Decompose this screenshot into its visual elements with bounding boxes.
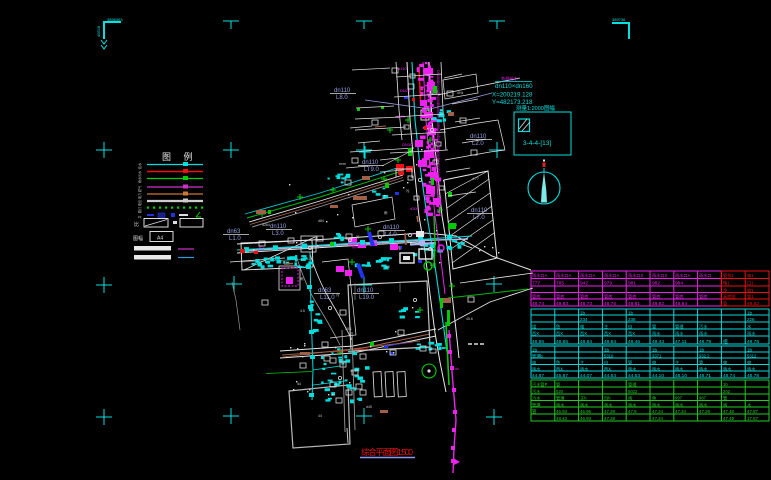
svg-text:rrnm: rrnm	[339, 162, 346, 166]
svg-text:48.84: 48.84	[580, 339, 592, 345]
svg-text:管: 管	[652, 323, 656, 330]
svg-text:785: 785	[556, 281, 564, 287]
svg-text:电1: 电1	[747, 287, 754, 293]
svg-text:48.86: 48.86	[556, 339, 568, 345]
svg-text:管: 管	[723, 300, 727, 307]
svg-text:雨水口A: 雨水口A	[604, 272, 620, 279]
svg-text:雨水: 雨水	[747, 330, 756, 337]
svg-text:管1: 管1	[747, 293, 754, 300]
svg-text:L11.0: L11.0	[320, 295, 335, 301]
svg-text:DN30: DN30	[402, 142, 413, 147]
svg-text:45.6: 45.6	[466, 317, 473, 321]
svg-text:管: 管	[556, 381, 560, 388]
svg-text:47.24: 47.24	[652, 416, 664, 421]
svg-text:44.07: 44.07	[580, 373, 592, 379]
svg-text:雨水: 雨水	[652, 366, 661, 373]
svg-text:48.76: 48.76	[604, 301, 616, 307]
svg-text:污: 污	[356, 234, 360, 239]
svg-text:dn: dn	[455, 367, 459, 371]
svg-text:雨: 雨	[384, 210, 388, 215]
svg-text:48.73: 48.73	[580, 301, 592, 307]
svg-text:污水管P: 污水管P	[532, 381, 548, 388]
svg-text:48.62: 48.62	[747, 301, 759, 307]
svg-text:A4: A4	[157, 236, 163, 242]
svg-text:5312: 5312	[747, 354, 757, 359]
svg-text:d300: d300	[410, 206, 420, 211]
svg-text:d110: d110	[398, 66, 407, 71]
svg-text:47.49: 47.49	[723, 416, 735, 421]
svg-text:48.43: 48.43	[652, 339, 664, 345]
svg-text:202: 202	[723, 389, 731, 394]
svg-text:5310: 5310	[604, 354, 614, 359]
svg-text:雨水: 雨水	[699, 330, 708, 337]
svg-text:dn110×dn160: dn110×dn160	[495, 83, 533, 90]
svg-text:1b: 1b	[604, 348, 610, 353]
svg-text:020: 020	[556, 389, 564, 394]
svg-text:管底: 管底	[604, 293, 612, 300]
svg-text:Y=482173.218: Y=482173.218	[492, 99, 533, 106]
svg-text:X=200219.128: X=200219.128	[492, 92, 533, 99]
svg-text:各样给水: 各样给水	[501, 75, 519, 82]
svg-text:47.29: 47.29	[699, 409, 711, 414]
svg-text:d4: d4	[297, 382, 301, 386]
svg-text:48.81: 48.81	[628, 301, 640, 307]
svg-text:雨水: 雨水	[652, 330, 661, 337]
svg-text:48.78: 48.78	[747, 373, 759, 379]
svg-text:4.77: 4.77	[472, 177, 479, 181]
svg-text:管检2: 管检2	[723, 272, 734, 279]
svg-text:给水: 给水	[137, 162, 142, 169]
svg-text:L2.0: L2.0	[472, 141, 484, 147]
svg-text:雨水: 雨水	[532, 366, 541, 373]
svg-text:48.74: 48.74	[532, 301, 544, 307]
svg-text:雨: 雨	[300, 276, 304, 281]
svg-text:L8.0: L8.0	[336, 95, 348, 101]
svg-text:3896363: 3896363	[107, 17, 123, 22]
svg-text:46.95: 46.95	[580, 409, 592, 414]
svg-text:L1.0: L1.0	[229, 236, 241, 242]
svg-text:雨水: 雨水	[723, 366, 732, 373]
svg-text:鱼: 鱼	[652, 395, 656, 401]
svg-text:1b: 1b	[747, 348, 753, 353]
svg-text:48.10: 48.10	[675, 373, 687, 379]
svg-text:雨水口A: 雨水口A	[532, 272, 548, 279]
svg-text:雨水口A: 雨水口A	[580, 272, 596, 279]
svg-text:污水: 污水	[532, 388, 541, 395]
svg-text:1b: 1b	[652, 348, 658, 353]
svg-text:雨水口: 雨水口	[699, 272, 712, 279]
svg-text:管底: 管底	[556, 293, 564, 300]
svg-text:1b: 1b	[532, 348, 538, 353]
svg-text:雨水: 雨水	[604, 402, 613, 409]
svg-text:48.84: 48.84	[675, 301, 687, 307]
svg-text:主b: 主b	[580, 395, 587, 401]
svg-text:4.5: 4.5	[300, 309, 305, 313]
svg-text:47.24: 47.24	[652, 409, 664, 414]
svg-text:48.94: 48.94	[604, 339, 616, 345]
svg-text:44.63: 44.63	[604, 373, 616, 379]
svg-text:污: 污	[336, 292, 340, 297]
svg-text:管: 管	[723, 395, 727, 402]
svg-text:雨水: 雨水	[628, 366, 637, 373]
svg-text:d264: d264	[262, 223, 270, 227]
svg-text:组: 组	[532, 323, 536, 329]
svg-text:综合平面图1:500: 综合平面图1:500	[361, 447, 413, 457]
svg-text:47.48: 47.48	[723, 409, 735, 414]
svg-text:1b: 1b	[580, 311, 586, 316]
svg-text:L7.0: L7.0	[473, 215, 485, 221]
svg-text:电1: 电1	[747, 272, 754, 278]
svg-text:雨水口A: 雨水口A	[675, 272, 691, 279]
svg-text:L4.0: L4.0	[385, 232, 397, 238]
svg-text:997: 997	[675, 396, 683, 401]
svg-text:48.82: 48.82	[652, 301, 664, 307]
svg-text:雨d3: 雨d3	[352, 244, 361, 249]
svg-text:48.79: 48.79	[699, 339, 711, 345]
svg-text:图 例: 图 例	[162, 151, 198, 162]
svg-text:雨水: 雨水	[628, 402, 637, 409]
svg-text:管理: 管理	[532, 402, 541, 409]
svg-text:管: 管	[532, 408, 537, 415]
svg-text:雨水: 雨水	[137, 176, 142, 183]
svg-text:40528: 40528	[96, 25, 101, 37]
svg-text:47.11: 47.11	[675, 339, 687, 345]
svg-text:46.93: 46.93	[580, 416, 592, 421]
svg-text:45.1: 45.1	[345, 327, 352, 331]
svg-text:管理: 管理	[556, 395, 565, 402]
svg-text:1b: 1b	[628, 311, 634, 316]
svg-text:管底: 管底	[532, 293, 540, 300]
svg-text:雨水: 雨水	[652, 402, 661, 409]
svg-text:管理: 管理	[675, 323, 684, 330]
svg-text:48.78: 48.78	[747, 339, 759, 345]
svg-text:管: 管	[699, 359, 703, 366]
svg-text:47.28: 47.28	[604, 416, 616, 421]
svg-text:雨水: 雨水	[556, 402, 565, 409]
svg-text:主: 主	[580, 359, 584, 365]
svg-text:比: 比	[134, 221, 139, 228]
svg-text:雨水: 雨水	[580, 402, 589, 409]
svg-text:井: 井	[137, 215, 142, 218]
svg-text:17.67: 17.67	[747, 416, 759, 421]
svg-text:48.96: 48.96	[532, 339, 544, 345]
svg-text:鱼: 鱼	[556, 359, 560, 365]
svg-text:管: 管	[628, 359, 632, 366]
svg-text:污水: 污水	[699, 323, 708, 330]
svg-text:48.74: 48.74	[723, 373, 735, 379]
svg-text:238: 238	[628, 317, 636, 322]
svg-text:1b: 1b	[699, 348, 705, 353]
svg-text:DN300: DN300	[436, 191, 441, 204]
svg-text:自: 自	[604, 359, 608, 366]
svg-text:雨水: 雨水	[675, 330, 684, 337]
svg-text:48.71: 48.71	[699, 373, 711, 379]
svg-text:雨水口X: 雨水口X	[628, 272, 644, 279]
svg-text:981: 981	[628, 281, 636, 287]
svg-text:44.53: 44.53	[628, 373, 640, 379]
svg-text:主: 主	[604, 323, 608, 329]
svg-text:净: 净	[723, 287, 727, 294]
svg-text:雨水: 雨水	[675, 366, 684, 373]
svg-text:高底图: 高底图	[723, 293, 736, 300]
svg-text:48.46: 48.46	[628, 339, 640, 345]
svg-text:电信: 电信	[137, 199, 142, 206]
svg-text:1b: 1b	[723, 382, 728, 387]
svg-text:47.9: 47.9	[628, 409, 637, 414]
svg-text:图幅: 图幅	[133, 235, 143, 242]
svg-text:5022: 5022	[628, 389, 638, 394]
svg-text:47.34: 47.34	[675, 409, 687, 414]
svg-text:48.43: 48.43	[556, 416, 568, 421]
svg-text:电力: 电力	[137, 193, 142, 199]
svg-text:雨水: 雨水	[699, 402, 708, 409]
svg-text:组: 组	[723, 338, 728, 345]
svg-text:982: 982	[652, 281, 660, 287]
svg-text:主: 主	[675, 359, 679, 365]
svg-text:L19.0: L19.0	[359, 295, 375, 301]
svg-text:46.93: 46.93	[556, 409, 568, 414]
svg-text:389736: 389736	[612, 17, 626, 22]
svg-text:燃气: 燃气	[137, 185, 142, 192]
svg-text:路灯: 路灯	[137, 206, 142, 213]
svg-text:自b: 自b	[604, 395, 611, 402]
svg-text:雨水: 雨水	[747, 366, 756, 373]
svg-text:48.83: 48.83	[556, 301, 568, 307]
svg-text:污水: 污水	[532, 395, 541, 402]
svg-text:LT9.0: LT9.0	[364, 167, 380, 173]
svg-text:管理: 管理	[628, 381, 637, 388]
svg-text:777: 777	[532, 281, 540, 287]
svg-text:管底: 管底	[699, 293, 707, 300]
svg-text:d84: d84	[318, 219, 324, 223]
svg-text:984: 984	[675, 281, 683, 287]
svg-text:44.10: 44.10	[652, 373, 664, 379]
svg-text:电1: 电1	[723, 280, 730, 286]
svg-text:L3.0: L3.0	[272, 231, 284, 237]
svg-text:污: 污	[406, 188, 410, 193]
svg-text:雨水: 雨水	[675, 402, 684, 409]
svg-text:管底: 管底	[580, 293, 588, 300]
svg-text:44: 44	[318, 414, 322, 418]
svg-text:3371: 3371	[652, 354, 662, 359]
svg-text:44.87: 44.87	[532, 373, 544, 379]
svg-text:4H4: 4H4	[457, 91, 463, 95]
svg-text:942: 942	[580, 281, 588, 287]
svg-text:雨水口A: 雨水口A	[556, 272, 572, 279]
svg-text:污水: 污水	[137, 170, 142, 177]
svg-text:自: 自	[628, 323, 632, 330]
svg-text:雨水口X: 雨水口X	[652, 272, 668, 279]
svg-text:47.87: 47.87	[747, 409, 759, 414]
svg-text:鱼: 鱼	[556, 323, 560, 329]
svg-text:管底: 管底	[675, 293, 683, 300]
svg-text:雨水: 雨水	[699, 366, 708, 373]
svg-text:3-4-4-[13]: 3-4-4-[13]	[523, 140, 551, 147]
svg-text:234: 234	[580, 317, 588, 322]
svg-text:45.87: 45.87	[556, 373, 568, 379]
svg-text:4.6: 4.6	[385, 265, 390, 269]
svg-text:47.28: 47.28	[604, 409, 616, 414]
svg-text:987: 987	[699, 396, 707, 401]
svg-text:226: 226	[747, 317, 755, 322]
svg-text:管底: 管底	[652, 293, 660, 300]
svg-text:管底: 管底	[628, 293, 636, 300]
svg-text:1b: 1b	[747, 311, 753, 316]
svg-text:雨水: 雨水	[580, 366, 589, 373]
svg-text:979: 979	[604, 281, 612, 287]
svg-text:管理b: 管理b	[532, 353, 543, 360]
svg-text:932.2: 932.2	[699, 354, 710, 359]
svg-text:d45: d45	[366, 405, 372, 409]
